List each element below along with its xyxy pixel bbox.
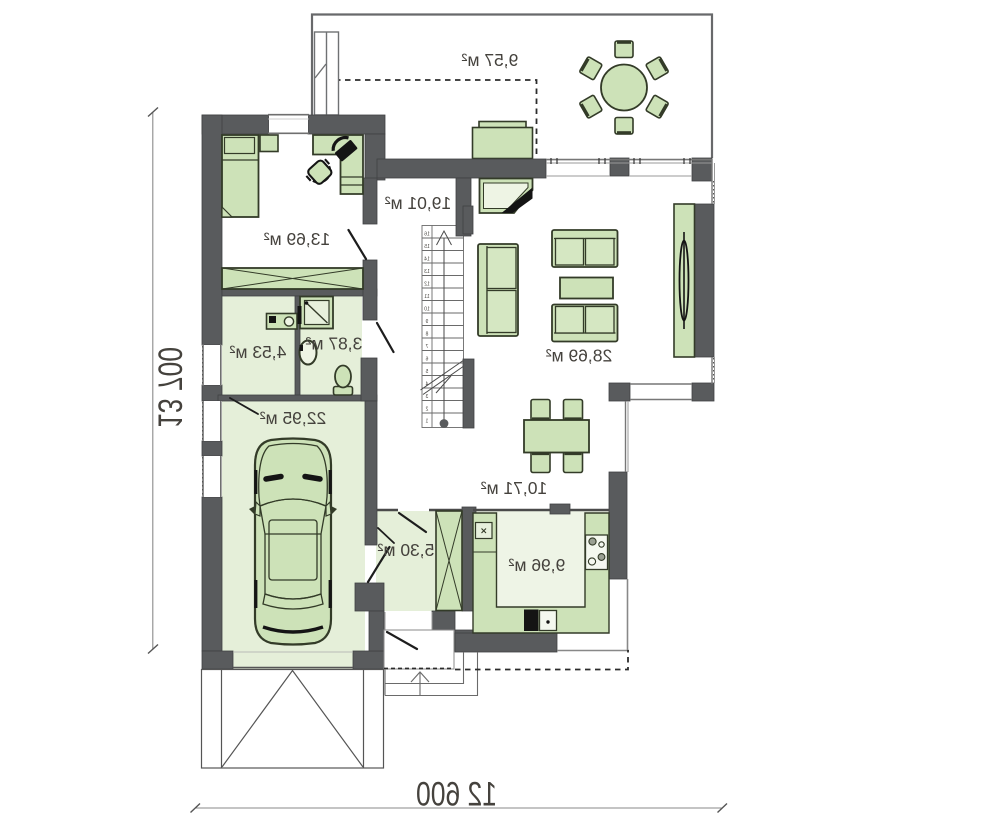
svg-text:10,71 м²: 10,71 м² (481, 478, 548, 498)
svg-text:4,53 м²: 4,53 м² (229, 342, 286, 362)
svg-text:12: 12 (424, 282, 430, 288)
svg-text:8: 8 (425, 332, 428, 338)
svg-text:5,30 м²: 5,30 м² (377, 540, 434, 560)
svg-text:22,95 м²: 22,95 м² (260, 408, 327, 428)
svg-text:3,87 м²: 3,87 м² (305, 334, 362, 354)
svg-text:13: 13 (424, 269, 430, 275)
svg-text:6: 6 (425, 357, 428, 363)
svg-text:1: 1 (425, 419, 428, 425)
svg-text:2: 2 (425, 407, 428, 413)
svg-text:3: 3 (425, 394, 428, 400)
svg-text:10: 10 (424, 307, 430, 313)
svg-text:7: 7 (425, 344, 428, 350)
svg-text:9,57 м²: 9,57 м² (461, 50, 518, 70)
svg-text:9: 9 (425, 319, 428, 325)
svg-text:11: 11 (424, 294, 429, 300)
svg-text:13 700: 13 700 (151, 347, 189, 428)
svg-text:9,96 м²: 9,96 м² (508, 555, 565, 575)
svg-text:19,01 м²: 19,01 м² (385, 193, 452, 213)
svg-text:15: 15 (424, 244, 430, 250)
svg-text:16: 16 (424, 232, 430, 238)
svg-text:5: 5 (425, 369, 428, 375)
svg-text:13,69 м²: 13,69 м² (264, 229, 331, 249)
svg-text:12 600: 12 600 (416, 776, 497, 814)
svg-text:14: 14 (424, 257, 430, 263)
svg-text:28,69 м²: 28,69 м² (546, 346, 613, 366)
svg-text:4: 4 (425, 382, 428, 388)
